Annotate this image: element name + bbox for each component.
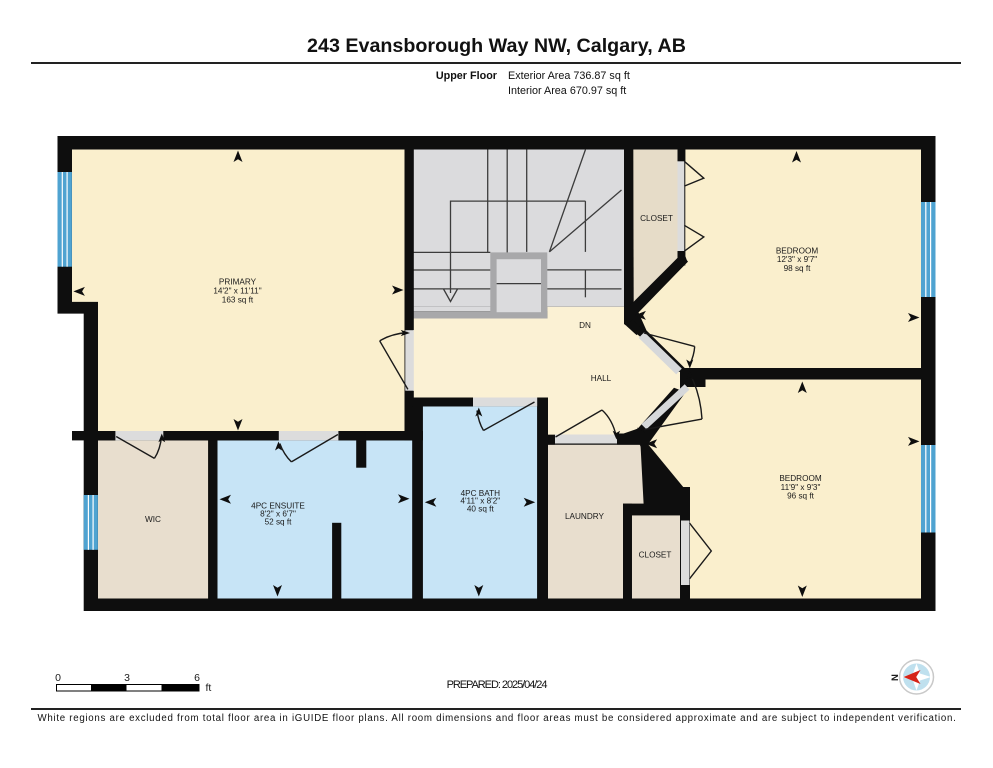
svg-text:40 sq ft: 40 sq ft	[467, 504, 495, 513]
svg-text:BEDROOM: BEDROOM	[779, 474, 821, 483]
svg-text:PRIMARY: PRIMARY	[219, 278, 257, 287]
svg-text:3: 3	[124, 672, 130, 684]
svg-text:CLOSET: CLOSET	[640, 214, 673, 223]
svg-text:163 sq ft: 163 sq ft	[222, 296, 254, 305]
svg-text:11'9" x 9'3": 11'9" x 9'3"	[781, 483, 821, 492]
svg-text:N: N	[890, 674, 901, 681]
svg-text:DN: DN	[579, 321, 591, 330]
svg-text:LAUNDRY: LAUNDRY	[565, 512, 605, 521]
svg-text:6: 6	[194, 672, 200, 684]
svg-text:96 sq ft: 96 sq ft	[787, 492, 815, 501]
svg-text:CLOSET: CLOSET	[639, 550, 672, 559]
svg-text:WIC: WIC	[145, 515, 161, 524]
svg-text:12'3" x 9'7": 12'3" x 9'7"	[777, 255, 817, 264]
svg-text:HALL: HALL	[591, 374, 612, 383]
svg-text:0: 0	[55, 672, 61, 684]
svg-text:98 sq ft: 98 sq ft	[784, 264, 812, 273]
svg-text:52 sq ft: 52 sq ft	[265, 518, 293, 527]
svg-text:14'2" x 11'11": 14'2" x 11'11"	[213, 287, 261, 296]
svg-text:BEDROOM: BEDROOM	[776, 247, 818, 256]
svg-text:ft: ft	[206, 682, 212, 694]
